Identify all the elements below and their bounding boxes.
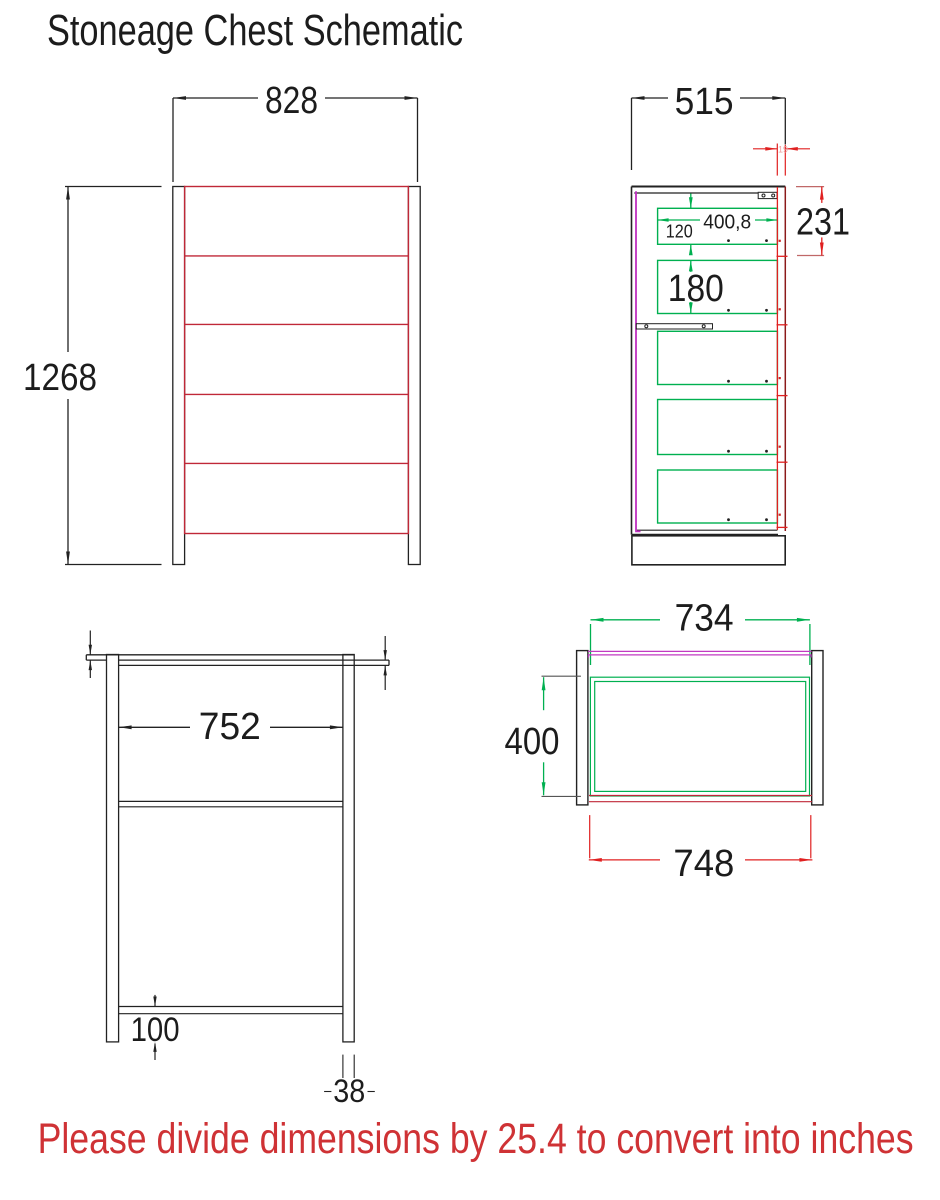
svg-text:752: 752 — [199, 706, 261, 748]
svg-text:100: 100 — [131, 1011, 180, 1049]
svg-text:231: 231 — [796, 201, 850, 243]
svg-text:828: 828 — [265, 80, 318, 122]
svg-text:Please divide dimensions by 25: Please divide dimensions by 25.4 to conv… — [38, 1115, 914, 1163]
svg-text:180: 180 — [668, 268, 724, 310]
svg-text:515: 515 — [675, 81, 734, 123]
svg-text:400,8: 400,8 — [703, 212, 751, 234]
svg-text:734: 734 — [675, 597, 734, 639]
svg-text:400: 400 — [505, 721, 560, 763]
svg-text:120: 120 — [666, 221, 693, 241]
svg-text:38: 38 — [333, 1073, 365, 1109]
svg-text:1268: 1268 — [23, 357, 97, 399]
svg-text:Stoneage Chest Schematic: Stoneage Chest Schematic — [47, 6, 463, 55]
svg-text:748: 748 — [673, 843, 734, 885]
svg-text:19: 19 — [778, 145, 788, 155]
